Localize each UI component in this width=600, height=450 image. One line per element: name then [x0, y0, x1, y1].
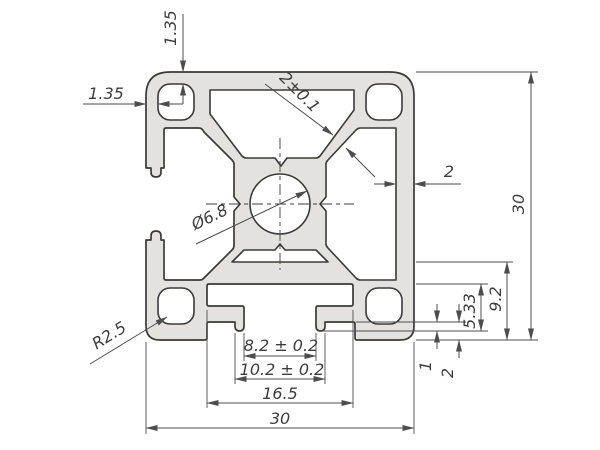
dim-9-2: 9.2 [486, 286, 505, 311]
dim-16-5: 16.5 [262, 384, 298, 403]
dim-2-foot: 2 [438, 368, 457, 378]
corner-hole-top-left [158, 84, 194, 120]
drawing-canvas: 1.351.352±0.1Ø6.82309.25.33128.2 ± 0.210… [0, 0, 600, 450]
corner-hole-bottom-left [158, 288, 194, 324]
dim-2-wall: 2 [444, 162, 454, 181]
profile-technical-drawing: 1.351.352±0.1Ø6.82309.25.33128.2 ± 0.210… [0, 0, 600, 450]
dim-1-lip: 1 [416, 361, 435, 371]
dim-dia-6-8: Ø6.8 [187, 200, 230, 234]
profile-body [146, 72, 414, 340]
dim-8-2: 8.2 ± 0.2 [244, 336, 318, 355]
corner-hole-top-right [366, 84, 402, 120]
dim-10-2: 10.2 ± 0.2 [240, 360, 325, 379]
dim-1-35-top: 1.35 [161, 10, 180, 46]
dim-30-right: 30 [509, 194, 528, 214]
dim-5-33: 5.33 [460, 293, 479, 329]
dim-30-bottom: 30 [270, 409, 290, 428]
corner-hole-bottom-right [366, 288, 402, 324]
dim-1-35-left: 1.35 [88, 84, 124, 103]
dim-r2-5: R2.5 [89, 318, 130, 353]
